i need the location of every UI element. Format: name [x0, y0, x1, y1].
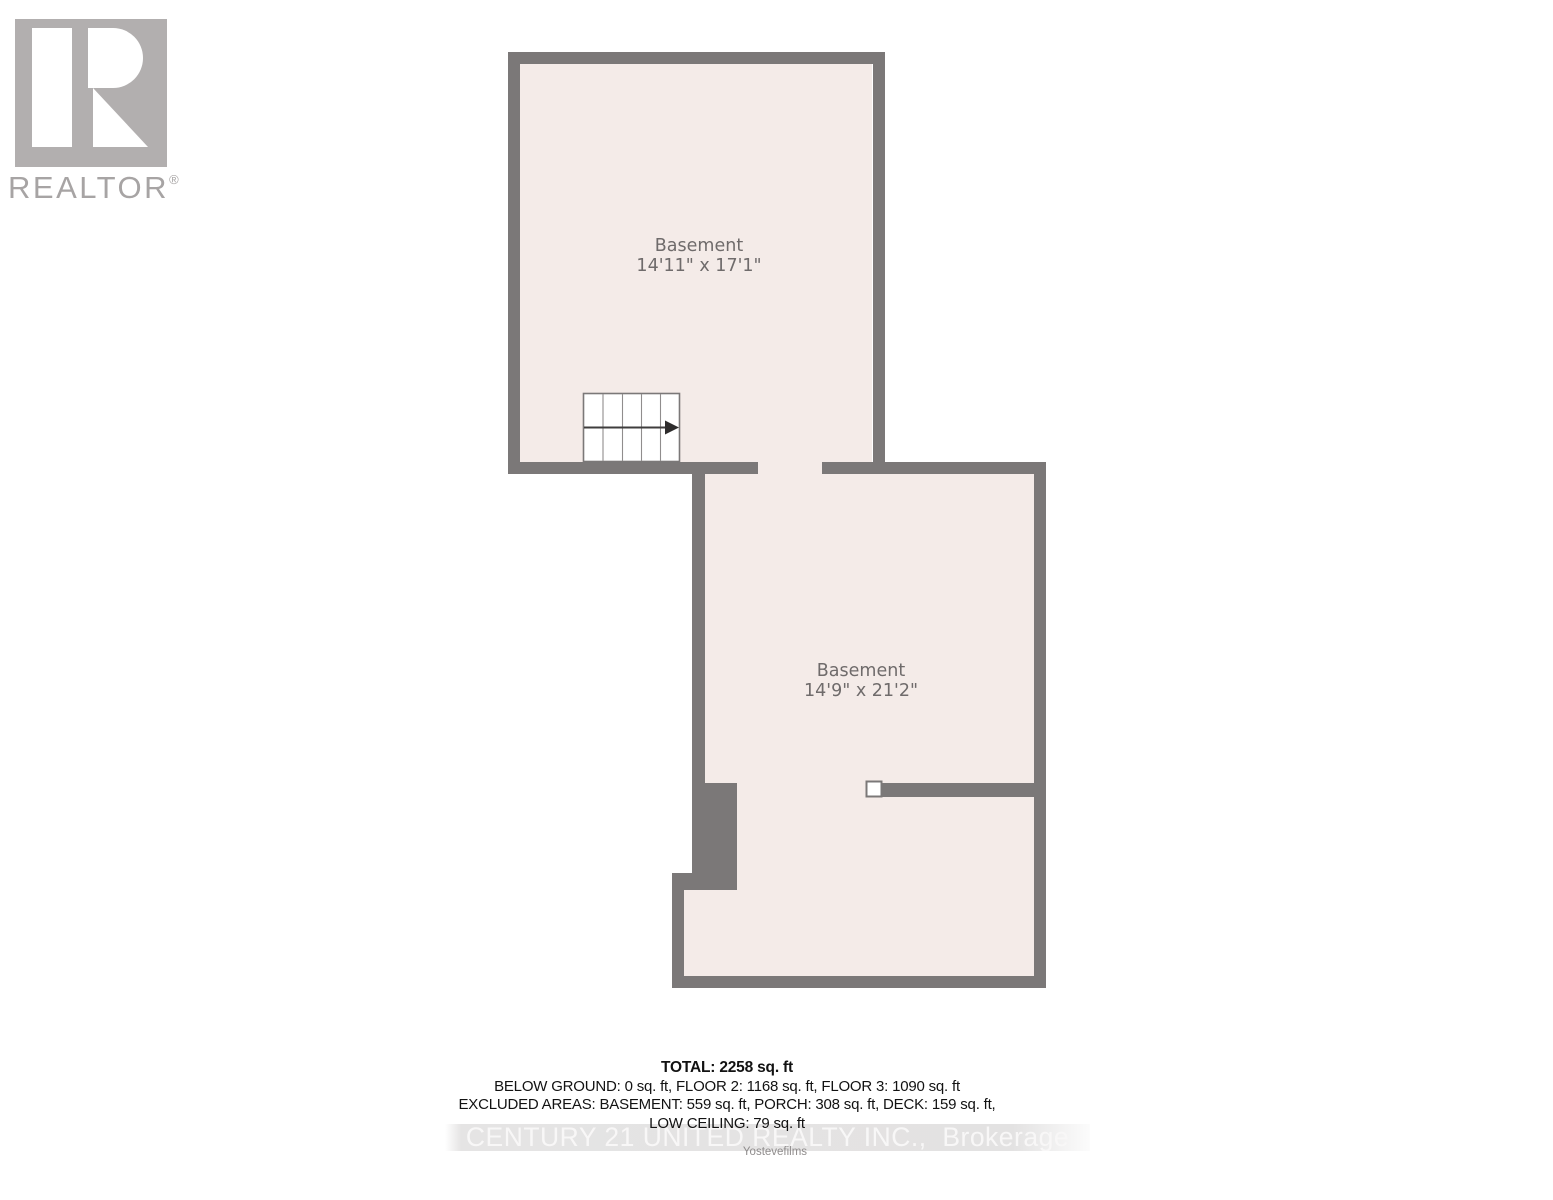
lower-basement-name: Basement	[804, 661, 918, 681]
realtor-wordmark: REALTOR®	[8, 170, 179, 206]
upper-basement-name: Basement	[636, 236, 761, 256]
lower-basement-label: Basement 14'9" x 21'2"	[804, 661, 918, 701]
wall-lower-left-upper	[692, 462, 705, 783]
floorplan-drawing	[0, 0, 1553, 1200]
room-floors	[520, 64, 1034, 976]
area-summary: TOTAL: 2258 sq. ft BELOW GROUND: 0 sq. f…	[427, 1059, 1027, 1133]
wall-lower-left-lower	[672, 873, 684, 988]
upper-basement-dimensions: 14'11" x 17'1"	[636, 256, 761, 276]
wall-mid-left-segment	[508, 462, 758, 474]
wall-interior-partition	[880, 783, 1034, 797]
wall-upper-left	[508, 52, 520, 474]
upper-basement-label: Basement 14'11" x 17'1"	[636, 236, 761, 276]
lower-basement-floor	[684, 474, 1034, 976]
summary-line-excluded: EXCLUDED AREAS: BASEMENT: 559 sq. ft, PO…	[427, 1096, 1027, 1115]
stairs	[584, 394, 680, 462]
wall-upper-top	[508, 52, 885, 64]
realtor-logo-icon	[15, 19, 167, 167]
summary-total: TOTAL: 2258 sq. ft	[427, 1059, 1027, 1078]
wall-lower-right	[1034, 462, 1046, 988]
wall-mid-right-segment	[822, 462, 1046, 474]
wall-upper-right	[873, 52, 885, 474]
doorway-opening	[758, 462, 822, 474]
summary-line-low-ceiling: LOW CEILING: 79 sq. ft	[427, 1115, 1027, 1134]
summary-line-floors: BELOW GROUND: 0 sq. ft, FLOOR 2: 1168 sq…	[427, 1078, 1027, 1097]
registered-mark: ®	[169, 172, 179, 187]
realtor-wordmark-text: REALTOR	[8, 170, 169, 205]
wall-bottom	[672, 976, 1046, 988]
photographer-credit: Yostevefilms	[743, 1146, 807, 1158]
floorplan-page: REALTOR® Basement 14'11" x 17'1" Basemen…	[0, 0, 1553, 1200]
lower-basement-dimensions: 14'9" x 21'2"	[804, 681, 918, 701]
partition-end-cap	[867, 782, 882, 797]
